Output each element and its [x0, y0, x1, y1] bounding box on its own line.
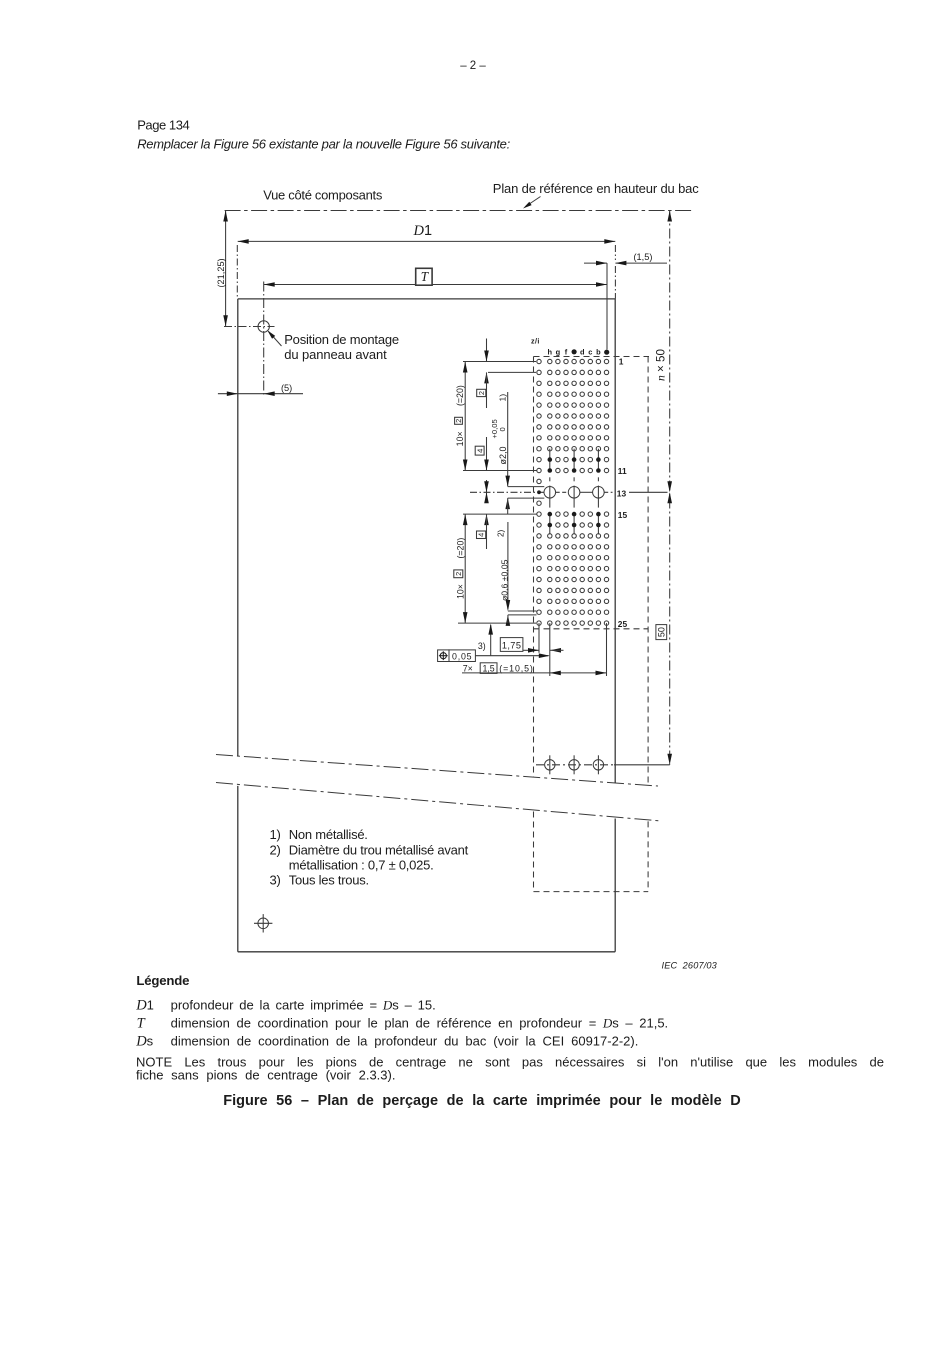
svg-text:Légende: Légende	[136, 973, 189, 988]
svg-text:1,5: 1,5	[482, 663, 494, 673]
svg-text:4: 4	[477, 533, 486, 537]
svg-text:2): 2)	[496, 529, 505, 537]
svg-text:Plan de référence en hauteur d: Plan de référence en hauteur du bac	[493, 181, 699, 196]
svg-text:(5): (5)	[281, 383, 292, 393]
svg-text:10×: 10×	[455, 584, 465, 599]
svg-text:b: b	[596, 348, 601, 357]
svg-text:1,75: 1,75	[502, 640, 521, 650]
svg-text:50: 50	[656, 627, 666, 637]
svg-text:du panneau avant: du panneau avant	[284, 347, 387, 362]
svg-text:3): 3)	[270, 872, 281, 887]
svg-text:T: T	[137, 1016, 146, 1032]
svg-text:11: 11	[618, 466, 627, 476]
svg-text:n × 50: n × 50	[655, 349, 668, 381]
svg-text:fiche sans pions de centrage (: fiche sans pions de centrage (voir 2.3.3…	[136, 1068, 395, 1083]
svg-text:D1: D1	[135, 997, 154, 1013]
svg-text:25: 25	[618, 619, 628, 629]
svg-text:10×: 10×	[455, 431, 465, 446]
svg-text:f: f	[565, 348, 568, 357]
svg-text:D1: D1	[413, 223, 433, 239]
svg-text:0,05: 0,05	[452, 651, 472, 661]
svg-text:Figure 56 – Plan de perçage de: Figure 56 – Plan de perçage de la carte …	[223, 1093, 741, 1109]
svg-text:Remplacer la Figure 56 existan: Remplacer la Figure 56 existante par la …	[137, 137, 510, 152]
svg-text:+0,05: +0,05	[490, 419, 499, 438]
svg-text:2): 2)	[270, 842, 281, 857]
svg-text:Position de montage: Position de montage	[284, 332, 399, 347]
svg-text:dimension de coordination pour: dimension de coordination pour le plan d…	[171, 1016, 669, 1031]
svg-text:Page 134: Page 134	[137, 118, 189, 133]
svg-text:Diamètre du trou métallisé ava: Diamètre du trou métallisé avant	[289, 842, 469, 857]
svg-text:c: c	[588, 348, 592, 357]
svg-text:2: 2	[454, 572, 463, 576]
svg-text:Tous les trous.: Tous les trous.	[289, 872, 369, 887]
svg-text:2: 2	[477, 391, 486, 395]
svg-text:(=20): (=20)	[455, 385, 465, 406]
svg-text:4: 4	[475, 449, 484, 453]
svg-text:1: 1	[619, 356, 624, 366]
svg-text:profondeur de la carte imprimé: profondeur de la carte imprimée = Ds – 1…	[171, 997, 436, 1012]
svg-text:15: 15	[618, 510, 628, 520]
svg-text:3): 3)	[478, 641, 486, 651]
svg-text:ø0,6 ±0,05: ø0,6 ±0,05	[500, 559, 510, 601]
svg-text:Non métallisé.: Non métallisé.	[289, 827, 368, 842]
svg-text:(=20): (=20)	[455, 538, 465, 559]
svg-text:1): 1)	[498, 394, 508, 402]
svg-text:d: d	[580, 348, 585, 357]
svg-text:1): 1)	[270, 827, 281, 842]
svg-text:– 2 –: – 2 –	[460, 60, 486, 72]
svg-text:7×: 7×	[463, 663, 473, 673]
svg-text:h: h	[548, 348, 553, 357]
svg-text:z/i: z/i	[531, 336, 540, 345]
svg-text:0: 0	[498, 427, 507, 431]
svg-text:Vue côté composants: Vue côté composants	[263, 188, 383, 203]
svg-text:métallisation : 0,7 ± 0,025.: métallisation : 0,7 ± 0,025.	[289, 857, 434, 872]
svg-text:(1,5): (1,5)	[634, 252, 653, 262]
svg-text:Ds: Ds	[135, 1034, 153, 1050]
svg-text:(21,25): (21,25)	[216, 258, 226, 287]
svg-text:dimension de coordination de l: dimension de coordination de la profonde…	[171, 1034, 639, 1049]
svg-text:ø2,0: ø2,0	[498, 446, 508, 464]
svg-text:g: g	[556, 348, 561, 357]
svg-text:2: 2	[454, 419, 463, 423]
svg-text:IEC 2607/03: IEC 2607/03	[662, 961, 718, 971]
svg-text:(=10,5): (=10,5)	[499, 663, 533, 673]
svg-text:13: 13	[617, 488, 627, 498]
